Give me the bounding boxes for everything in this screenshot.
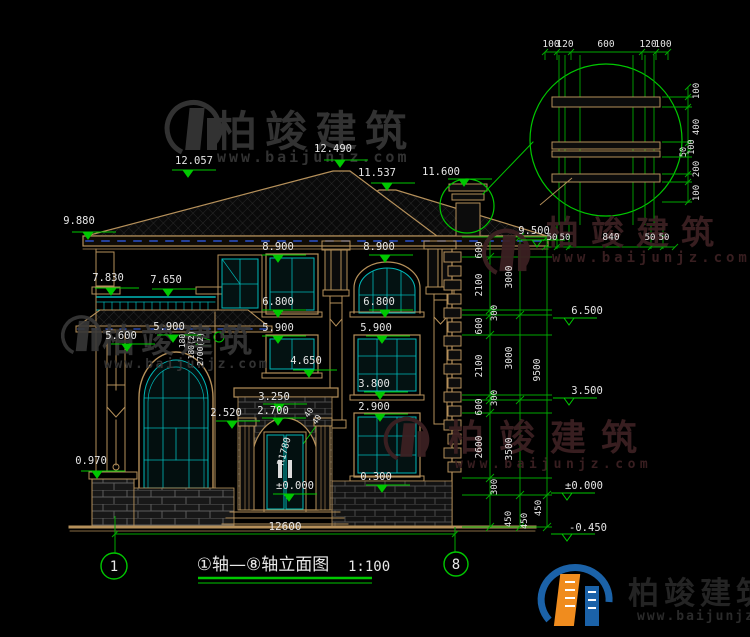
svg-text:±0.000: ±0.000: [276, 480, 314, 492]
svg-text:100: 100: [654, 39, 671, 50]
svg-text:www.baijunjz.com: www.baijunjz.com: [552, 250, 750, 266]
svg-text:300: 300: [490, 305, 500, 321]
svg-text:600: 600: [474, 241, 485, 258]
svg-text:5.900: 5.900: [153, 321, 185, 333]
svg-text:12600: 12600: [268, 520, 301, 533]
svg-text:2.700: 2.700: [257, 405, 289, 417]
svg-text:450: 450: [520, 513, 530, 529]
svg-text:100: 100: [692, 83, 702, 99]
svg-text:3000: 3000: [504, 346, 515, 369]
svg-text:6.800: 6.800: [262, 296, 294, 308]
dim-label: 2100: [474, 273, 485, 296]
svg-text:600: 600: [474, 317, 485, 334]
dim-label: 100: [692, 185, 702, 201]
dim-label: 200: [692, 161, 702, 177]
svg-text:9.500: 9.500: [518, 225, 550, 237]
svg-text:50: 50: [547, 233, 558, 243]
drawing-title: ①轴—⑧轴立面图 1:100: [197, 555, 390, 583]
svg-text:50: 50: [659, 233, 670, 243]
dim-label: 3500: [504, 437, 515, 460]
svg-text:www.baijunjz.com: www.baijunjz.com: [637, 609, 750, 624]
dim-label: 6.500: [553, 305, 603, 325]
svg-text:3500: 3500: [504, 437, 515, 460]
svg-text:12.057: 12.057: [175, 155, 213, 167]
dim-label: 9500: [532, 358, 543, 381]
svg-text:600: 600: [597, 39, 614, 50]
dim-label: 600: [474, 317, 485, 334]
svg-text:100: 100: [692, 185, 702, 201]
dim-label: 450: [504, 511, 514, 527]
svg-text:400: 400: [692, 119, 702, 135]
dim-label: 450: [534, 500, 544, 516]
dim-label: 180(2): [187, 331, 196, 360]
dim-label: 50: [659, 233, 670, 243]
dim-label: 300: [490, 479, 500, 495]
dim-label: 120: [556, 39, 573, 50]
svg-text:8: 8: [452, 557, 460, 573]
dim-label: 100: [692, 83, 702, 99]
dim-label: ±0.000: [551, 480, 603, 500]
svg-text:9500: 9500: [532, 358, 543, 381]
drawing-scale: 1:100: [348, 559, 390, 575]
dim-label: 3000: [504, 346, 515, 369]
dim-label: 600: [474, 241, 485, 258]
dim-label: 12600: [268, 520, 301, 533]
window-3f-right-arched: [350, 262, 424, 317]
dim-label: 50: [560, 233, 571, 243]
dim-label: 600: [474, 398, 485, 415]
svg-text:1: 1: [110, 559, 118, 575]
dim-label: 840: [602, 232, 619, 243]
svg-text:11.600: 11.600: [422, 166, 460, 178]
svg-text:9.880: 9.880: [63, 215, 95, 227]
svg-text:12.490: 12.490: [314, 143, 352, 155]
window-arched-left: [139, 352, 213, 488]
svg-text:0.970: 0.970: [75, 455, 107, 467]
watermark-logo-bottom-right: 柏竣建筑 www.baijunjz.com: [541, 567, 750, 626]
svg-text:±0.000: ±0.000: [565, 480, 603, 492]
svg-text:11.537: 11.537: [358, 167, 396, 179]
svg-text:2.900: 2.900: [358, 401, 390, 413]
svg-text:2600: 2600: [474, 435, 485, 458]
svg-text:450: 450: [534, 500, 544, 516]
svg-text:180: 180: [178, 334, 187, 349]
svg-text:3000: 3000: [504, 265, 515, 288]
dim-label: 100: [654, 39, 671, 50]
dim-label: 600: [597, 39, 614, 50]
dim-label: 2100: [474, 354, 485, 377]
elevation-drawing: 1 8 ①轴—⑧轴立面图 1:100 柏竣建筑 www.baijunjz.com…: [0, 0, 750, 637]
dim-label: 50: [679, 147, 689, 157]
watermark-right-middle: 柏竣建筑 www.baijunjz.com: [386, 418, 653, 472]
svg-text:300: 300: [490, 390, 500, 406]
svg-text:2100: 2100: [474, 354, 485, 377]
stone-base-left: [134, 488, 234, 527]
door-handle: [288, 460, 292, 478]
dim-label: 450: [520, 513, 530, 529]
dim-label: 12.057: [172, 155, 216, 177]
dim-label: 7.650: [150, 274, 196, 296]
dim-label: 50: [645, 233, 656, 243]
svg-text:7.650: 7.650: [150, 274, 182, 286]
dim-label: 180: [178, 334, 187, 349]
brick-base-right: [332, 481, 452, 527]
dim-label: 7.830: [92, 272, 139, 295]
svg-text:50: 50: [560, 233, 571, 243]
svg-text:柏竣建筑: 柏竣建筑: [546, 213, 726, 252]
dim-label: 400: [692, 119, 702, 135]
svg-text:3.800: 3.800: [358, 378, 390, 390]
dim-label: 2600: [474, 435, 485, 458]
svg-text:6.800: 6.800: [363, 296, 395, 308]
svg-text:200: 200: [692, 161, 702, 177]
dim-label: 3.500: [553, 385, 603, 405]
svg-text:7.830: 7.830: [92, 272, 124, 284]
callout-leader: [483, 142, 533, 194]
dim-label: -0.450: [551, 522, 607, 541]
svg-text:2700(2): 2700(2): [196, 332, 205, 366]
svg-text:450: 450: [504, 511, 514, 527]
dim-label: 2700(2): [196, 332, 205, 366]
cad-viewport[interactable]: 1 8 ①轴—⑧轴立面图 1:100 柏竣建筑 www.baijunjz.com…: [0, 0, 750, 637]
svg-text:180(2): 180(2): [187, 331, 196, 360]
svg-text:600: 600: [474, 398, 485, 415]
dim-label: 300: [490, 305, 500, 321]
svg-text:2100: 2100: [474, 273, 485, 296]
svg-text:3.500: 3.500: [571, 385, 603, 397]
svg-text:5.900: 5.900: [360, 322, 392, 334]
svg-text:0.300: 0.300: [360, 471, 392, 483]
svg-text:-0.450: -0.450: [569, 522, 607, 534]
dim-label: 3000: [504, 265, 515, 288]
svg-text:8.900: 8.900: [262, 241, 294, 253]
svg-text:50: 50: [679, 147, 689, 157]
svg-text:50: 50: [645, 233, 656, 243]
window-2f-right: [350, 335, 424, 400]
svg-text:5.900: 5.900: [262, 322, 294, 334]
svg-text:①轴—⑧轴立面图: ①轴—⑧轴立面图: [197, 555, 329, 575]
dim-label: 50: [547, 233, 558, 243]
axis-bubble-8: 8: [444, 552, 468, 576]
svg-text:5.600: 5.600: [105, 330, 137, 342]
dim-label: 0.970: [75, 455, 125, 478]
svg-text:840: 840: [602, 232, 619, 243]
svg-text:2.520: 2.520: [210, 407, 242, 419]
axis-bubble-1: 1: [101, 553, 127, 579]
svg-text:6.500: 6.500: [571, 305, 603, 317]
svg-text:3.250: 3.250: [258, 391, 290, 403]
svg-text:120: 120: [556, 39, 573, 50]
svg-text:柏竣建筑: 柏竣建筑: [628, 576, 750, 612]
svg-text:8.900: 8.900: [363, 241, 395, 253]
svg-text:300: 300: [490, 479, 500, 495]
dim-label: 300: [490, 390, 500, 406]
svg-text:4.650: 4.650: [290, 355, 322, 367]
